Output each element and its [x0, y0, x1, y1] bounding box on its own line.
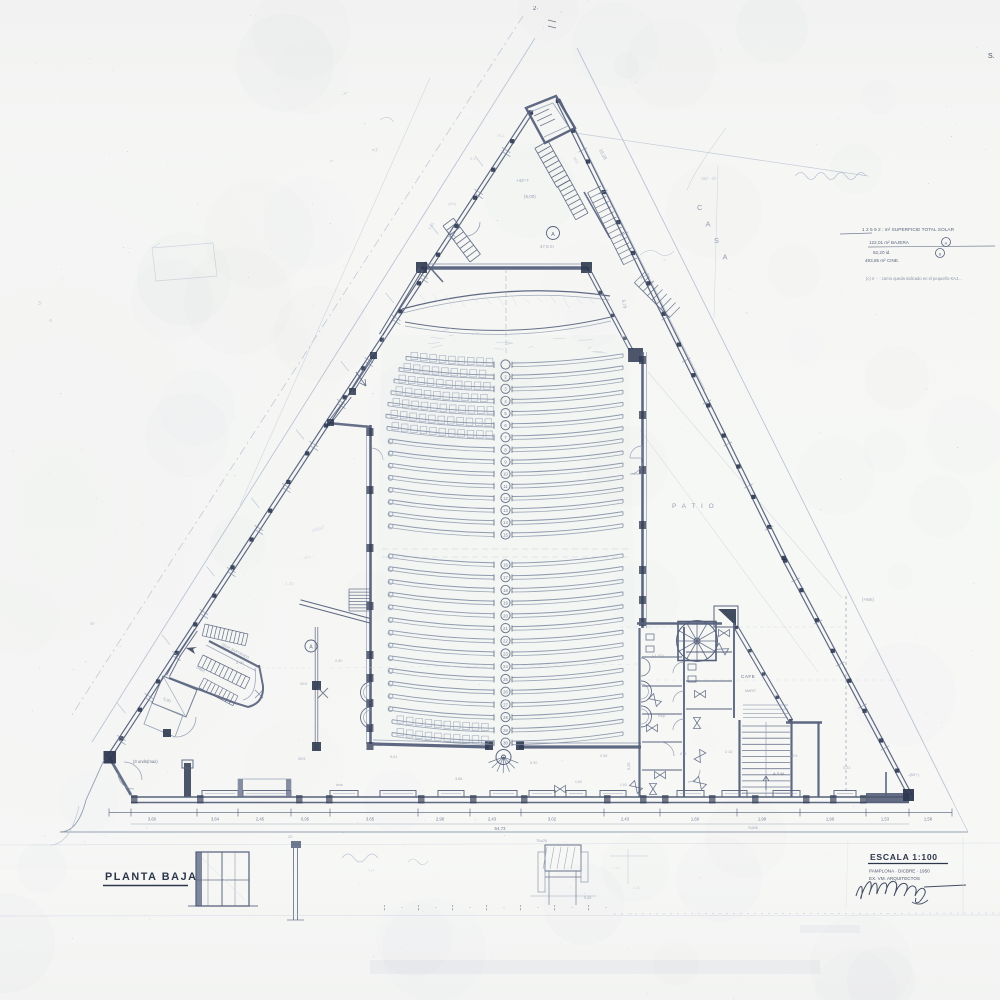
svg-text:0,22: 0,22 [843, 766, 850, 770]
svg-text:8?8: 8?8 [680, 752, 686, 756]
svg-text:70-1: 70-1 [497, 134, 505, 138]
svg-text:6,25: 6,25 [627, 763, 631, 770]
svg-text:(+6m): (+6m) [862, 597, 874, 602]
svg-text:1,96: 1,96 [826, 817, 835, 822]
svg-text:54,73: 54,73 [495, 826, 507, 831]
svg-text:3,60: 3,60 [148, 817, 157, 822]
svg-text:A.S.M.: A.S.M. [773, 771, 785, 776]
svg-text:122,01 m² BAJERA: 122,01 m² BAJERA [869, 240, 910, 245]
svg-text:(5m): (5m) [448, 201, 457, 206]
svg-text:·: · [503, 905, 505, 911]
svg-text:CAFE: CAFE [741, 674, 755, 679]
svg-text:0,90: 0,90 [335, 659, 342, 663]
svg-text:EX. VM. ARQUITECTOS: EX. VM. ARQUITECTOS [869, 876, 920, 881]
svg-text:↓: ↓ [12, 448, 15, 454]
svg-text:7··: 7·· [663, 258, 668, 263]
svg-text:2,45: 2,45 [256, 817, 265, 822]
svg-text:3,02: 3,02 [548, 817, 557, 822]
svg-text:5 90: 5 90 [530, 761, 537, 765]
svg-text:ESCALA 1:100: ESCALA 1:100 [870, 852, 938, 862]
svg-text:PLANTA BAJA: PLANTA BAJA [105, 871, 198, 883]
svg-text:2,43: 2,43 [621, 817, 630, 822]
svg-text:1,58: 1,58 [924, 817, 933, 822]
svg-text:10%: 10% [790, 754, 798, 758]
svg-text:Dep.: Dep. [658, 714, 666, 718]
svg-text:3·: 3· [38, 301, 43, 307]
svg-text:9·z: 9·z [470, 156, 476, 161]
svg-text:22: 22 [288, 834, 293, 839]
svg-text:62,20 id.: 62,20 id. [873, 250, 891, 255]
svg-text:47,5 m: 47,5 m [540, 244, 554, 249]
svg-text:(-1,52): (-1,52) [652, 653, 664, 658]
svg-text:MARIT: MARIT [745, 689, 757, 693]
svg-text:0 98: 0 98 [600, 754, 607, 758]
svg-text:5 90: 5 90 [236, 660, 245, 665]
svg-text:o~: o~ [330, 158, 335, 163]
svg-text:·5: ·5 [48, 318, 52, 323]
svg-text:0,60: 0,60 [575, 780, 582, 784]
svg-text:9,01: 9,01 [390, 755, 397, 759]
svg-text:* t *: * t * [368, 868, 375, 873]
svg-text:W·: W· [90, 621, 96, 626]
svg-text:2 10: 2 10 [725, 750, 732, 754]
svg-text:=7·: =7· [372, 148, 380, 154]
svg-text:PAMPLONA · DICBRE · 1950: PAMPLONA · DICBRE · 1950 [869, 869, 930, 874]
svg-text:1,53: 1,53 [881, 817, 890, 822]
svg-text:A: A [551, 232, 555, 238]
svg-text:3,65: 3,65 [455, 777, 462, 781]
svg-text:2,43: 2,43 [488, 817, 497, 822]
svg-text:90/9: 90/9 [300, 682, 307, 686]
svg-text:P A T I O: P A T I O [672, 503, 716, 510]
svg-text:70x25: 70x25 [536, 838, 548, 843]
svg-text:483,85 m² CINE.: 483,85 m² CINE. [865, 258, 899, 263]
svg-text:1,60: 1,60 [691, 817, 700, 822]
svg-text:~: ~ [745, 311, 748, 317]
svg-text:·: · [469, 905, 471, 911]
svg-text:1 2 5 9 2 : m² SUPERFICIE TOTA: 1 2 5 9 2 : m² SUPERFICIE TOTAL SOLAR [862, 227, 955, 233]
svg-text:-(60+): -(60+) [908, 772, 919, 777]
svg-text:·: · [537, 905, 539, 911]
svg-text:4,30: 4,30 [285, 581, 294, 586]
svg-text:A: A [945, 241, 948, 246]
svg-text:(3 unds(max): (3 unds(max) [133, 759, 158, 764]
svg-text:B: B [939, 252, 942, 257]
svg-text:3,64: 3,64 [211, 817, 220, 822]
svg-text:S.: S. [988, 53, 995, 60]
svg-text:2,60: 2,60 [620, 783, 627, 787]
svg-text:(c) s··· : como queda indicado: (c) s··· : como queda indicado en el peq… [866, 276, 962, 281]
svg-text:2,98: 2,98 [436, 817, 445, 822]
